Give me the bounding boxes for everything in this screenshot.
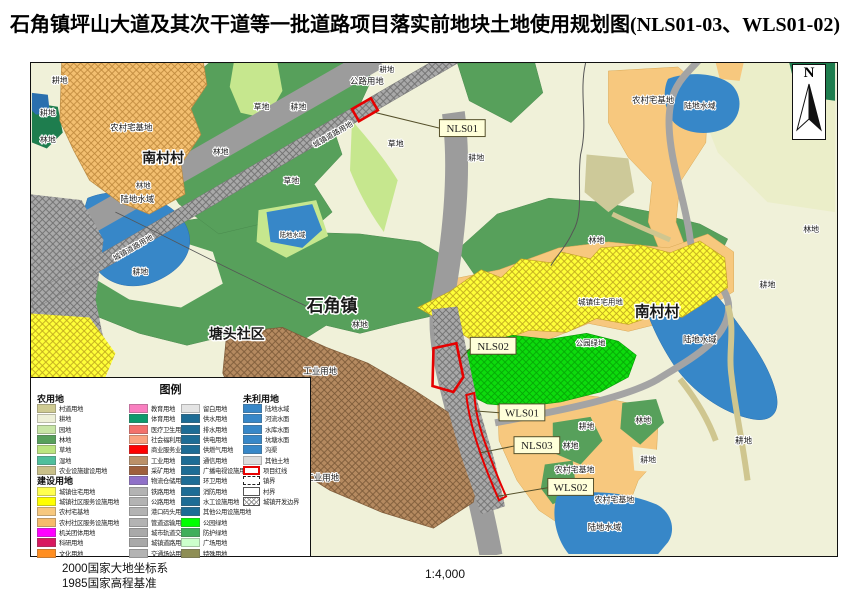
- plot-label-text: NLS03: [521, 440, 553, 452]
- legend-item-label: 耕地: [59, 414, 71, 423]
- legend-item: 项目红线: [243, 465, 299, 475]
- legend-color-swatch: [129, 538, 148, 547]
- map-region-label: 耕地: [735, 436, 752, 446]
- legend-section-label: 农用地: [37, 392, 64, 405]
- legend-item-label: 水库水面: [265, 425, 289, 434]
- legend-item-label: 供电用地: [203, 435, 227, 444]
- legend-color-swatch: [37, 507, 56, 516]
- map-region-label: 农村宅基地: [632, 95, 675, 105]
- legend-item-label: 广场用地: [203, 538, 227, 547]
- legend-color-swatch: [181, 445, 200, 454]
- legend-color-swatch: [37, 456, 56, 465]
- legend-item: 湿地: [37, 455, 119, 465]
- legend-color-swatch: [37, 404, 56, 413]
- legend-color-swatch: [129, 528, 148, 537]
- map-region-label: 南村村: [635, 302, 680, 320]
- legend-color-swatch: [181, 538, 200, 547]
- legend-color-swatch: [181, 466, 200, 475]
- legend-item-label: 铁路用地: [151, 487, 175, 496]
- legend-section-header: 农用地: [37, 393, 119, 403]
- north-arrow: N: [792, 64, 826, 140]
- map-region-label: 林地: [803, 224, 819, 234]
- map-region-label: 耕地: [290, 102, 306, 112]
- legend-color-swatch: [129, 445, 148, 454]
- map-region-label: 陆地水域: [683, 334, 717, 344]
- legend-color-swatch: [181, 528, 200, 537]
- legend-item-label: 水工设施用地: [203, 497, 239, 506]
- legend-item: 坑塘水面: [243, 434, 299, 444]
- map-region-label: 林地: [40, 135, 56, 145]
- legend-color-swatch: [129, 435, 148, 444]
- map-scale: 1:4,000: [380, 567, 510, 581]
- legend-item-label: 公路用地: [151, 497, 175, 506]
- legend-color-swatch: [129, 518, 148, 527]
- legend-color-swatch: [243, 414, 262, 423]
- legend-item-label: 农村社区服务设施用地: [59, 518, 119, 527]
- legend-color-swatch: [243, 404, 262, 413]
- legend-item-label: 城镇社区服务设施用地: [59, 497, 119, 506]
- legend-color-swatch: [243, 456, 262, 465]
- legend-item: 沟渠: [243, 445, 299, 455]
- map-legend: 图例 农用地村道用地耕地园地林地草地湿地农业设施建设用地建设用地城镇住宅用地城镇…: [30, 377, 311, 557]
- legend-color-swatch: [129, 466, 148, 475]
- legend-column-1: 农用地村道用地耕地园地林地草地湿地农业设施建设用地建设用地城镇住宅用地城镇社区服…: [37, 393, 119, 559]
- legend-item: 公园绿地: [181, 517, 251, 527]
- legend-color-swatch: [181, 549, 200, 558]
- legend-item-label: 消防用地: [203, 487, 227, 496]
- legend-item: 科研用地: [37, 538, 119, 548]
- legend-item: 镇界: [243, 476, 299, 486]
- map-region-label: 草地: [254, 102, 270, 112]
- legend-item-label: 村界: [263, 487, 275, 496]
- map-region-label: 林地: [563, 441, 579, 451]
- legend-item: 村道用地: [37, 403, 119, 413]
- legend-color-swatch: [37, 518, 56, 527]
- legend-color-swatch: [243, 425, 262, 434]
- legend-item: 特殊用地: [181, 548, 251, 558]
- legend-item: 草地: [37, 445, 119, 455]
- legend-color-swatch: [181, 487, 200, 496]
- legend-item-label: 湿地: [59, 456, 71, 465]
- map-region-label: 草地: [283, 175, 299, 185]
- legend-color-swatch: [181, 476, 200, 485]
- legend-color-swatch: [181, 456, 200, 465]
- legend-item-label: 供水用地: [203, 414, 227, 423]
- map-region-label: 陆地水域: [684, 101, 716, 111]
- legend-item: 供电用地: [181, 434, 251, 444]
- legend-item-label: 农村宅基地: [59, 507, 89, 516]
- north-label: N: [793, 65, 825, 82]
- legend-color-swatch: [181, 425, 200, 434]
- legend-color-swatch: [243, 435, 262, 444]
- map-region-label: 耕地: [379, 64, 394, 74]
- legend-item: 农村社区服务设施用地: [37, 517, 119, 527]
- legend-item: 其他公用设施用地: [181, 507, 251, 517]
- plot-label-text: WLS02: [554, 482, 588, 494]
- legend-item: 广播电视设施用地: [181, 465, 251, 475]
- legend-color-swatch: [181, 404, 200, 413]
- legend-color-swatch: [37, 497, 56, 506]
- legend-color-swatch: [37, 445, 56, 454]
- legend-item-label: 其他土地: [265, 456, 289, 465]
- legend-color-swatch: [37, 425, 56, 434]
- plot-label-text: WLS01: [505, 407, 539, 419]
- legend-section-header: 未利用地: [243, 393, 299, 403]
- legend-item: 河流水面: [243, 414, 299, 424]
- map-region-label: 农村宅基地: [555, 465, 595, 475]
- legend-item: 留白用地: [181, 403, 251, 413]
- map-region-label: 林地: [589, 235, 605, 245]
- legend-item: 供水用地: [181, 414, 251, 424]
- map-region-label: 耕地: [132, 267, 148, 277]
- map-region-label: 草地: [388, 138, 404, 148]
- legend-item-label: 陆地水域: [265, 404, 289, 413]
- legend-item: 其他土地: [243, 455, 299, 465]
- legend-color-swatch: [129, 549, 148, 558]
- datum-line-1: 2000国家大地坐标系: [62, 562, 168, 577]
- legend-color-swatch: [37, 487, 56, 496]
- legend-item-label: 通信用地: [203, 456, 227, 465]
- legend-item-label: 工业用地: [151, 456, 175, 465]
- legend-item-label: 草地: [59, 445, 71, 454]
- legend-column-3: 留白用地供水用地排水用地供电用地供燃气用地通信用地广播电视设施用地环卫用地消防用…: [181, 403, 251, 558]
- map-region-label: 耕地: [760, 280, 776, 290]
- legend-color-swatch: [37, 549, 56, 558]
- legend-color-swatch: [129, 404, 148, 413]
- legend-item-label: 镇界: [263, 476, 275, 485]
- map-region-label: 城镇住宅用地: [578, 297, 623, 307]
- map-region-label: 林地: [213, 146, 229, 156]
- legend-item-label: 科研用地: [59, 538, 83, 547]
- map-region-label: 耕地: [640, 455, 656, 465]
- legend-item-label: 村道用地: [59, 404, 83, 413]
- map-region-label: 耕地: [40, 108, 56, 118]
- map-region-label: 南村村: [142, 149, 184, 166]
- legend-color-swatch: [181, 518, 200, 527]
- map-region-label: 公路用地: [350, 76, 384, 86]
- legend-symbol-dash: [243, 476, 260, 485]
- legend-section-label: 未利用地: [243, 392, 279, 405]
- legend-color-swatch: [243, 445, 262, 454]
- legend-column-4: 未利用地陆地水域河流水面水库水面坑塘水面沟渠其他土地项目红线镇界村界城镇开发边界: [243, 393, 299, 507]
- map-region-label: 林地: [635, 415, 651, 425]
- legend-color-swatch: [37, 538, 56, 547]
- legend-item: 水库水面: [243, 424, 299, 434]
- legend-section-label: 建设用地: [37, 474, 73, 487]
- map-region-label: 林地: [136, 180, 151, 190]
- planning-map-page: 石角镇坪山大道及其次干道等一批道路项目落实前地块土地使用规划图(NLS01-03…: [0, 0, 850, 602]
- legend-item-label: 沟渠: [265, 445, 277, 454]
- legend-item: 城镇住宅用地: [37, 486, 119, 496]
- coordinate-system-note: 2000国家大地坐标系 1985国家高程基准: [62, 562, 168, 592]
- legend-color-swatch: [129, 497, 148, 506]
- compass-needle-icon: [794, 82, 824, 134]
- legend-item-label: 环卫用地: [203, 476, 227, 485]
- legend-item-label: 采矿用地: [151, 466, 175, 475]
- legend-item-label: 留白用地: [203, 404, 227, 413]
- legend-color-swatch: [129, 456, 148, 465]
- legend-color-swatch: [37, 528, 56, 537]
- map-region-label: 陆地水域: [279, 230, 305, 239]
- legend-color-swatch: [181, 435, 200, 444]
- legend-item-label: 体育用地: [151, 414, 175, 423]
- legend-item-label: 防护绿地: [203, 528, 227, 537]
- legend-item: 水工设施用地: [181, 496, 251, 506]
- map-region-label: 林地: [352, 319, 368, 329]
- legend-section-header: 建设用地: [37, 476, 119, 486]
- legend-item: 园地: [37, 424, 119, 434]
- map-region-label: 耕地: [52, 75, 68, 85]
- legend-item-label: 公园绿地: [203, 518, 227, 527]
- page-title: 石角镇坪山大道及其次干道等一批道路项目落实前地块土地使用规划图(NLS01-03…: [0, 8, 850, 37]
- map-region-label: 耕地: [579, 421, 595, 431]
- legend-item-label: 项目红线: [263, 466, 287, 475]
- legend-item-label: 供燃气用地: [203, 445, 233, 454]
- legend-item: 广场用地: [181, 538, 251, 548]
- legend-item: 陆地水域: [243, 403, 299, 413]
- legend-color-swatch: [181, 497, 200, 506]
- map-region-label: 公园绿地: [576, 337, 606, 347]
- map-region-label: 工业用地: [303, 366, 337, 376]
- legend-item: 排水用地: [181, 424, 251, 434]
- map-region-label: 耕地: [468, 152, 484, 162]
- legend-item: 林地: [37, 434, 119, 444]
- legend-item-label: 城镇开发边界: [263, 497, 299, 506]
- map-region-label: 农村宅基地: [110, 123, 153, 133]
- map-region-label: 陆地水域: [588, 522, 622, 532]
- legend-item-label: 河流水面: [265, 414, 289, 423]
- legend-item-label: 城镇住宅用地: [59, 487, 95, 496]
- legend-symbol-red: [243, 466, 260, 475]
- legend-color-swatch: [129, 487, 148, 496]
- legend-item: 通信用地: [181, 455, 251, 465]
- legend-item: 城镇社区服务设施用地: [37, 496, 119, 506]
- legend-item: 防护绿地: [181, 527, 251, 537]
- plot-label-text: NLS02: [477, 341, 509, 353]
- legend-item-label: 教育用地: [151, 404, 175, 413]
- legend-item-label: 坑塘水面: [265, 435, 289, 444]
- legend-item-label: 其他公用设施用地: [203, 507, 251, 516]
- legend-color-swatch: [181, 507, 200, 516]
- legend-item: 城镇开发边界: [243, 496, 299, 506]
- legend-item: 文化用地: [37, 548, 119, 558]
- legend-item: 环卫用地: [181, 476, 251, 486]
- legend-color-swatch: [129, 425, 148, 434]
- legend-item: 耕地: [37, 414, 119, 424]
- legend-color-swatch: [129, 476, 148, 485]
- legend-color-swatch: [129, 414, 148, 423]
- legend-item-label: 林地: [59, 435, 71, 444]
- map-region-label: 塘头社区: [209, 325, 265, 342]
- legend-item-label: 机关团体用地: [59, 528, 95, 537]
- legend-item-label: 特殊用地: [203, 549, 227, 558]
- legend-symbol-solid: [243, 487, 260, 496]
- legend-item-label: 文化用地: [59, 549, 83, 558]
- legend-color-swatch: [37, 414, 56, 423]
- legend-item: 村界: [243, 486, 299, 496]
- legend-item: 农村宅基地: [37, 507, 119, 517]
- legend-color-swatch: [181, 414, 200, 423]
- datum-line-2: 1985国家高程基准: [62, 577, 168, 592]
- legend-item-label: 排水用地: [203, 425, 227, 434]
- legend-item: 机关团体用地: [37, 527, 119, 537]
- legend-color-swatch: [37, 435, 56, 444]
- map-region-label: 陆地水域: [120, 194, 154, 204]
- legend-color-swatch: [129, 507, 148, 516]
- legend-item: 消防用地: [181, 486, 251, 496]
- map-region-label: 石角镇: [306, 295, 358, 315]
- legend-symbol-hatch: [243, 497, 260, 506]
- map-region-label: 农村宅基地: [595, 494, 635, 504]
- plot-label-text: NLS01: [447, 123, 479, 135]
- legend-item: 供燃气用地: [181, 445, 251, 455]
- legend-item-label: 园地: [59, 425, 71, 434]
